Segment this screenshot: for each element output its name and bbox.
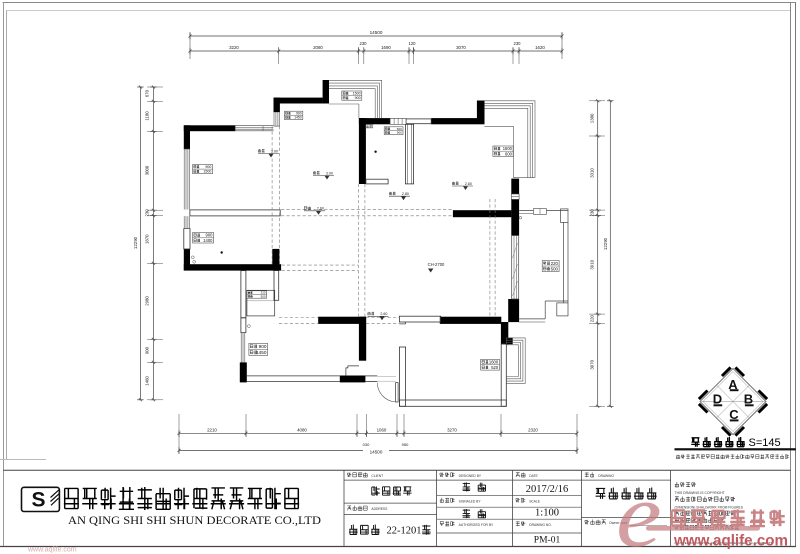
- svg-text:230: 230: [144, 209, 149, 217]
- svg-text:230: 230: [360, 41, 368, 46]
- svg-text:2080: 2080: [313, 45, 323, 50]
- svg-text:e: e: [616, 465, 662, 554]
- svg-text:950: 950: [402, 442, 409, 447]
- svg-text:500: 500: [261, 294, 266, 298]
- svg-text:230: 230: [514, 41, 522, 46]
- svg-text:220: 220: [551, 261, 559, 266]
- svg-text:3910: 3910: [590, 259, 595, 269]
- svg-text:3310: 3310: [590, 168, 595, 178]
- svg-text:PM-01: PM-01: [534, 536, 561, 546]
- svg-text:1500: 1500: [353, 92, 361, 96]
- svg-text:SIGNALED BY: SIGNALED BY: [459, 499, 482, 503]
- svg-text:2210: 2210: [207, 428, 217, 433]
- svg-text:3070: 3070: [456, 45, 466, 50]
- svg-text:4080: 4080: [297, 428, 307, 433]
- svg-text:1620: 1620: [535, 45, 545, 50]
- svg-text:www.aqlife.com: www.aqlife.com: [673, 533, 788, 550]
- svg-text:3000: 3000: [144, 165, 149, 175]
- svg-text:DATE: DATE: [529, 474, 538, 478]
- svg-text:12290: 12290: [133, 236, 138, 249]
- svg-text:THIS DRAWING IS COPYRIGHT: THIS DRAWING IS COPYRIGHT: [675, 491, 725, 495]
- svg-text:www.aqlife.com: www.aqlife.com: [27, 547, 77, 554]
- svg-text:12290: 12290: [603, 237, 608, 250]
- svg-text:900: 900: [259, 344, 267, 349]
- svg-text:2.60: 2.60: [317, 207, 324, 211]
- svg-text:2320: 2320: [528, 428, 538, 433]
- svg-text:14500: 14500: [370, 449, 383, 454]
- svg-text:1450: 1450: [256, 350, 267, 355]
- svg-text:DESIGNED BY: DESIGNED BY: [459, 474, 482, 478]
- svg-text:1500: 1500: [203, 170, 211, 174]
- svg-text:2.60: 2.60: [380, 312, 387, 316]
- svg-text:1450: 1450: [294, 116, 302, 120]
- svg-text:14500: 14500: [370, 30, 383, 35]
- svg-text:SCALE: SCALE: [529, 499, 541, 503]
- svg-text:AN QING SHI SHI SHUN DECORATE: AN QING SHI SHI SHUN DECORATE CO.,LTD: [68, 515, 321, 527]
- svg-text:D: D: [713, 392, 722, 407]
- svg-text:DRAWING NO.: DRAWING NO.: [529, 523, 552, 527]
- svg-text:030: 030: [363, 442, 370, 447]
- svg-text:(DIMENSION) SHALLWORK FROM FIG: (DIMENSION) SHALLWORK FROM FIGURES: [675, 505, 744, 509]
- svg-text:520: 520: [491, 365, 499, 370]
- svg-text:S: S: [31, 489, 45, 512]
- svg-text:1180: 1180: [144, 111, 149, 121]
- svg-text:1:100: 1:100: [535, 508, 559, 519]
- svg-text:900: 900: [397, 131, 402, 135]
- svg-text:3220: 3220: [229, 45, 239, 50]
- svg-text:600: 600: [505, 151, 513, 156]
- svg-text:670: 670: [144, 89, 149, 97]
- svg-text:3270: 3270: [447, 428, 457, 433]
- svg-text:1400: 1400: [203, 238, 213, 243]
- svg-text:900: 900: [144, 346, 149, 354]
- svg-text:2.80: 2.80: [402, 192, 409, 196]
- svg-text:3.00: 3.00: [271, 149, 278, 153]
- svg-text:3.00: 3.00: [326, 171, 333, 175]
- svg-text:2017/2/16: 2017/2/16: [526, 484, 569, 495]
- svg-text:1600: 1600: [489, 360, 499, 365]
- svg-text:2.80: 2.80: [465, 182, 472, 186]
- svg-text:1380: 1380: [590, 113, 595, 123]
- svg-text:CLIENT: CLIENT: [371, 474, 383, 478]
- svg-text:1460: 1460: [144, 376, 149, 386]
- svg-text:S=145: S=145: [749, 437, 781, 449]
- svg-text:3070: 3070: [590, 359, 595, 369]
- svg-text:B: B: [744, 392, 753, 407]
- svg-text:22-1201: 22-1201: [387, 526, 422, 537]
- svg-text:230: 230: [590, 209, 595, 217]
- svg-text:900: 900: [355, 96, 361, 100]
- svg-text:DRAWING: DRAWING: [598, 474, 614, 478]
- svg-text:2980: 2980: [144, 296, 149, 306]
- svg-text:ADDRESS: ADDRESS: [371, 507, 388, 511]
- svg-text:120: 120: [409, 41, 417, 46]
- svg-text:AUTHORIZED FOR BY: AUTHORIZED FOR BY: [459, 523, 494, 527]
- svg-text:900: 900: [205, 165, 211, 169]
- svg-text:1060: 1060: [377, 428, 387, 433]
- svg-text:220: 220: [590, 315, 595, 323]
- svg-text:1690: 1690: [381, 45, 391, 50]
- svg-text:500: 500: [551, 266, 559, 271]
- svg-text:CH-2700: CH-2700: [428, 262, 445, 267]
- svg-text:1870: 1870: [144, 234, 149, 244]
